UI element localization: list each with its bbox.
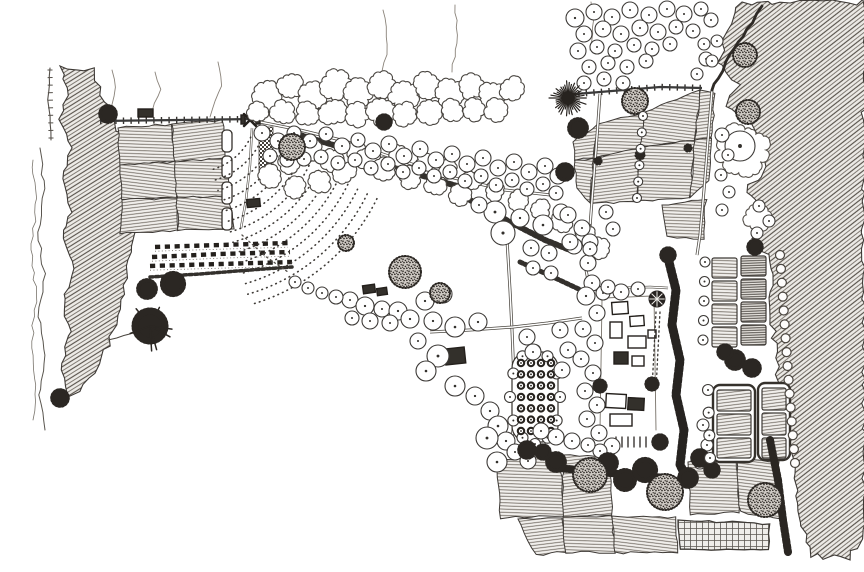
field-south-block — [518, 518, 566, 556]
terrace-beds-east — [712, 258, 737, 347]
windbreak-east-of-homestead — [668, 258, 687, 478]
lane-gate-south — [241, 128, 252, 228]
field-nw-cell — [120, 161, 177, 201]
fence-line — [48, 68, 51, 140]
windbreak-dash-row — [152, 252, 290, 261]
orchard-ne-circle-trees — [566, 1, 723, 90]
site-plan-page: Hand-drawn landscape site plan (bird's-e… — [0, 0, 864, 572]
stream-wavy-line-2 — [31, 160, 37, 420]
site-plan-drawing — [0, 0, 864, 572]
branchy-lone-tree — [130, 307, 172, 350]
community-garden-grid — [678, 520, 770, 550]
field-south-block — [612, 516, 678, 554]
field-nw-cell — [118, 124, 175, 166]
field-nw-cell — [172, 120, 225, 163]
field-nw-cell — [120, 198, 178, 234]
hill-trail — [210, 62, 222, 117]
windbreak-dash-row — [155, 243, 288, 251]
wheel-tree — [649, 291, 666, 308]
hill-trail — [452, 5, 457, 72]
field-south-block — [563, 515, 615, 553]
bed-edge-tree-row — [698, 257, 710, 345]
terrace-beds-east-dark — [741, 256, 766, 345]
road-main-west — [100, 119, 255, 121]
homestead-buildings — [606, 301, 656, 426]
hill-trail — [380, 10, 387, 80]
garden-enclosure-beds — [717, 388, 786, 458]
stream-wavy-line — [38, 148, 46, 430]
